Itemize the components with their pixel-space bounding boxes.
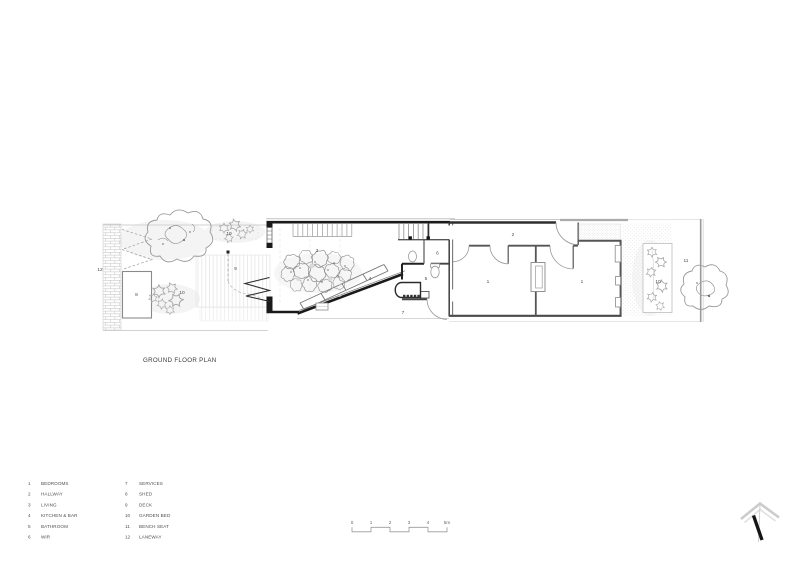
legend-num: 3 — [28, 502, 31, 507]
drawing-title: GROUND FLOOR PLAN — [143, 357, 217, 364]
legend-label: BEDROOMS — [41, 481, 69, 486]
cabinet — [316, 303, 328, 310]
front-door — [556, 223, 578, 246]
basin — [421, 292, 430, 299]
legend-num: 4 — [28, 513, 31, 518]
label-laneway: 12 — [97, 267, 103, 273]
label-bathroom: 5 — [425, 276, 428, 282]
scale-bar: 0 1 2 3 4 5m — [351, 520, 451, 532]
label-bedroom-right: 1 — [581, 279, 584, 285]
scale-label: 4 — [427, 520, 430, 525]
scale-bar-line — [352, 527, 447, 532]
label-hallway: 2 — [512, 232, 515, 238]
label-garden-bed-side: 10 — [179, 290, 185, 296]
garden-bed-front-outline — [643, 244, 672, 313]
legend-num: 11 — [125, 524, 130, 529]
legend-num: 1 — [28, 481, 31, 486]
legend-label: SERVICES — [139, 481, 163, 486]
deck-marker-post — [227, 251, 230, 254]
stairs — [398, 223, 449, 240]
door-left-bedroom — [490, 246, 508, 264]
north-arrow-icon — [741, 504, 779, 543]
porch-hatch — [579, 224, 621, 241]
party-wall — [449, 222, 452, 316]
scale-label: 1 — [370, 520, 373, 525]
front-wall-niches — [615, 246, 621, 308]
label-living: 3 — [316, 248, 319, 254]
legend-num: 2 — [28, 492, 31, 497]
north-window-mullions — [293, 224, 352, 237]
laneway — [103, 224, 121, 330]
laneway-brick-hatch — [103, 224, 121, 330]
legend-num: 10 — [125, 513, 131, 518]
door-wir-arc — [453, 246, 469, 262]
door-right-bedroom — [550, 246, 573, 269]
bar-counter — [395, 283, 420, 298]
legend-num: 9 — [125, 502, 128, 507]
legend-label: DECK — [139, 502, 153, 507]
street-tree — [681, 265, 729, 310]
label-bedroom-left: 1 — [487, 279, 490, 285]
legend-num: 7 — [125, 481, 128, 486]
floor-plan-drawing: 12 8 10 9 10 3 4 6 5 7 2 1 1 10 11 GROUN… — [0, 0, 800, 565]
label-garden-bed-rear: 10 — [226, 231, 232, 237]
toilet-lower — [431, 266, 439, 278]
legend-label: LIVING — [41, 502, 57, 507]
scale-label: 0 — [351, 520, 354, 525]
front-yard — [622, 219, 703, 322]
deck-step-boards — [200, 308, 268, 322]
legend-num: 12 — [125, 535, 131, 540]
label-bench-seat: 11 — [684, 258, 689, 264]
scale-label: 2 — [389, 520, 392, 525]
legend-label: WIR — [41, 535, 51, 540]
legend-num: 8 — [125, 492, 128, 497]
bench-seat-line — [701, 219, 704, 322]
floor-plan-sheet: 12 8 10 9 10 3 4 6 5 7 2 1 1 10 11 GROUN… — [0, 0, 800, 565]
legend: 1 BEDROOMS 2 HALLWAY 3 LIVING 4 KITCHEN … — [28, 481, 171, 540]
legend-label: SHED — [139, 492, 153, 497]
legend-label: BENCH SEAT — [139, 524, 169, 529]
legend-label: BATHROOM — [41, 524, 68, 529]
fireplace — [531, 263, 545, 292]
legend-label: LANEWAY — [139, 535, 162, 540]
legend-num: 5 — [28, 524, 31, 529]
legend-label: KITCHEN & BAR — [41, 513, 78, 518]
label-kitchen-bar: 4 — [369, 276, 372, 282]
label-garden-bed-front: 10 — [655, 279, 661, 285]
label-wir: 6 — [436, 251, 439, 257]
label-services: 7 — [402, 310, 405, 316]
legend-label: GARDEN BED — [139, 513, 171, 518]
label-shed: 8 — [135, 292, 138, 298]
legend-label: HALLWAY — [41, 492, 63, 497]
scale-label: 3 — [408, 520, 411, 525]
bedroom-wing — [449, 223, 622, 317]
legend-num: 6 — [28, 535, 31, 540]
scale-label: 5m — [444, 520, 451, 525]
label-deck: 9 — [234, 266, 237, 272]
toilet-upper — [409, 251, 417, 262]
